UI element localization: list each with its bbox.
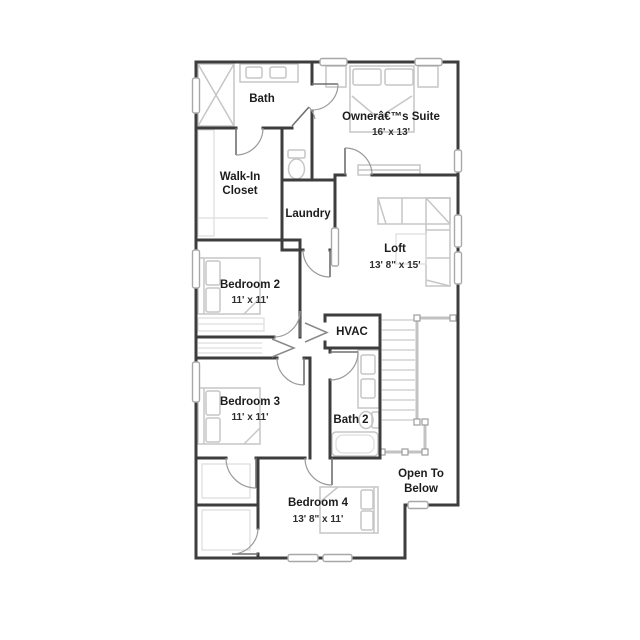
loft-dims: 13' 8" x 15'	[369, 260, 420, 271]
floor-plan: Bath Ownerâ€™s Suite 16' x 13' Walk-In C…	[0, 0, 640, 640]
linen-shelves	[198, 343, 262, 353]
bedroom2-label: Bedroom 2	[220, 279, 280, 291]
loft-label: Loft	[384, 243, 406, 255]
door-bedroom4	[305, 458, 332, 485]
window	[455, 150, 462, 172]
window	[288, 555, 318, 562]
closet-shelves	[202, 464, 250, 550]
door-bedroom2	[274, 311, 300, 337]
bedroom4-label: Bedroom 4	[288, 497, 349, 509]
door-hvac-bifold	[305, 323, 327, 342]
bath2-label: Bath 2	[333, 414, 368, 426]
window	[415, 59, 442, 66]
hvac-label: HVAC	[336, 326, 368, 338]
bedroom3-label: Bedroom 3	[220, 396, 280, 408]
window	[408, 502, 428, 509]
window	[320, 59, 347, 66]
window	[193, 250, 200, 288]
bathtub-icon	[332, 432, 378, 456]
open-to-below-label-line2: Below	[404, 483, 438, 495]
laundry-label: Laundry	[285, 208, 331, 220]
window	[193, 362, 200, 402]
bedroom4-bed-icon	[320, 487, 378, 533]
doors	[226, 84, 372, 554]
walk-in-closet-label-line2: Closet	[222, 185, 257, 197]
bath-label: Bath	[249, 93, 275, 105]
door-closet-top	[226, 458, 256, 488]
door-bath-closet	[236, 128, 263, 155]
shower-icon	[198, 64, 234, 126]
door-linen-bifold	[272, 339, 294, 357]
floor-plan-page: Bath Ownerâ€™s Suite 16' x 13' Walk-In C…	[0, 0, 640, 640]
bath-vanity-icon	[240, 64, 298, 82]
bedroom2-dims: 11' x 11'	[231, 295, 268, 306]
bath2-vanity-icon	[358, 350, 379, 408]
open-to-below-label-line1: Open To	[398, 468, 444, 480]
window	[193, 78, 200, 113]
door-suite-bath	[312, 84, 338, 110]
bedroom2-dresser-icon	[198, 318, 264, 331]
walk-in-closet-label-line1: Walk-In	[220, 171, 260, 183]
bath-toilet-icon	[288, 150, 305, 179]
window	[455, 215, 462, 247]
loft-sofa-icon	[378, 198, 450, 286]
window	[332, 228, 339, 266]
door-bath2	[330, 352, 358, 380]
stair-railing	[379, 315, 456, 455]
walk-in-closet-shelves	[198, 130, 268, 236]
door-laundry	[303, 250, 330, 277]
bedroom4-dims: 13' 8" x 11'	[293, 514, 344, 525]
window	[323, 555, 352, 562]
owners-suite-dims: 16' x 13'	[372, 127, 410, 138]
stairs	[382, 320, 415, 420]
bedroom3-dims: 11' x 11'	[231, 412, 268, 423]
owners-suite-label: Ownerâ€™s Suite	[342, 111, 440, 123]
door-bedroom3	[277, 358, 304, 385]
window	[455, 252, 462, 284]
